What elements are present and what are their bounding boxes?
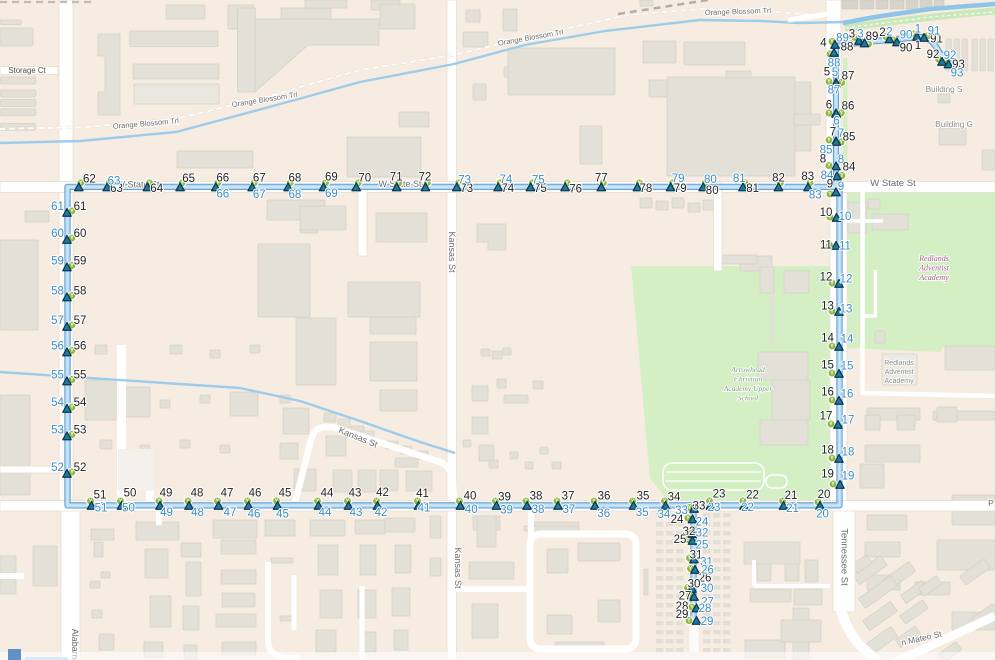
svg-text:Arrowhead: Arrowhead — [730, 365, 765, 374]
svg-text:78: 78 — [640, 183, 653, 195]
svg-text:15: 15 — [821, 360, 834, 372]
svg-text:81: 81 — [746, 183, 759, 195]
svg-text:17: 17 — [842, 415, 855, 427]
svg-text:79: 79 — [672, 173, 685, 185]
svg-text:Building G: Building G — [935, 120, 973, 129]
svg-text:Y: Y — [830, 398, 834, 404]
svg-text:1: 1 — [915, 40, 921, 52]
svg-text:54: 54 — [74, 397, 87, 409]
svg-text:21: 21 — [786, 503, 799, 515]
svg-text:72: 72 — [419, 172, 432, 184]
svg-text:55: 55 — [74, 370, 87, 382]
svg-text:29: 29 — [676, 609, 689, 621]
svg-text:66: 66 — [216, 173, 229, 185]
svg-text:36: 36 — [597, 508, 610, 520]
svg-text:Kansas St: Kansas St — [453, 547, 463, 589]
svg-text:32: 32 — [696, 528, 709, 540]
svg-text:63: 63 — [108, 175, 121, 187]
svg-text:14: 14 — [841, 334, 854, 346]
svg-text:9: 9 — [838, 181, 844, 193]
svg-text:37: 37 — [562, 491, 575, 503]
svg-text:Redlands: Redlands — [918, 254, 949, 263]
svg-text:5: 5 — [832, 67, 838, 79]
svg-text:11: 11 — [839, 241, 851, 253]
svg-text:90: 90 — [900, 30, 913, 42]
svg-text:52: 52 — [74, 462, 87, 474]
svg-text:Y: Y — [827, 111, 831, 117]
svg-text:28: 28 — [699, 603, 712, 615]
svg-text:45: 45 — [276, 509, 289, 521]
svg-text:5: 5 — [824, 67, 830, 79]
svg-text:Christian: Christian — [734, 375, 763, 384]
svg-text:74: 74 — [500, 174, 513, 186]
svg-text:56: 56 — [51, 341, 64, 353]
svg-text:34: 34 — [658, 509, 671, 521]
svg-text:4: 4 — [820, 38, 827, 50]
svg-text:61: 61 — [51, 201, 64, 213]
svg-text:81: 81 — [733, 173, 746, 185]
svg-text:Academy: Academy — [918, 273, 949, 282]
svg-text:46: 46 — [248, 509, 261, 521]
svg-text:92: 92 — [927, 49, 940, 61]
svg-text:19: 19 — [821, 469, 834, 481]
svg-text:35: 35 — [636, 507, 649, 519]
svg-text:18: 18 — [821, 445, 834, 457]
svg-text:25: 25 — [674, 534, 687, 546]
svg-text:48: 48 — [191, 488, 204, 500]
svg-text:Redlands: Redlands — [884, 360, 914, 367]
svg-text:69: 69 — [325, 188, 338, 200]
svg-text:19: 19 — [842, 471, 855, 483]
svg-text:82: 82 — [772, 173, 785, 185]
svg-text:56: 56 — [74, 341, 87, 353]
svg-text:Y: Y — [827, 138, 831, 144]
svg-text:21: 21 — [785, 490, 798, 502]
svg-text:20: 20 — [818, 489, 831, 501]
svg-text:50: 50 — [122, 503, 135, 515]
svg-text:13: 13 — [821, 301, 834, 313]
svg-text:Adventist: Adventist — [918, 264, 950, 273]
svg-text:39: 39 — [500, 505, 513, 517]
svg-text:58: 58 — [74, 286, 87, 298]
svg-text:Kansas St: Kansas St — [447, 231, 457, 273]
svg-text:17: 17 — [820, 411, 833, 423]
svg-text:48: 48 — [191, 507, 204, 519]
svg-text:30: 30 — [688, 579, 701, 591]
svg-text:42: 42 — [376, 487, 389, 499]
svg-text:16: 16 — [821, 387, 834, 399]
svg-text:76: 76 — [569, 184, 582, 196]
svg-text:51: 51 — [95, 503, 108, 515]
svg-text:School: School — [738, 394, 758, 403]
svg-text:80: 80 — [706, 185, 719, 197]
svg-text:2: 2 — [886, 27, 892, 39]
svg-text:57: 57 — [51, 315, 64, 327]
svg-text:12: 12 — [820, 272, 833, 284]
svg-text:23: 23 — [713, 489, 726, 501]
svg-text:3: 3 — [857, 29, 863, 41]
svg-text:2: 2 — [879, 27, 885, 39]
svg-text:45: 45 — [279, 488, 292, 500]
svg-text:89: 89 — [836, 33, 849, 45]
svg-text:54: 54 — [51, 397, 64, 409]
svg-text:Y: Y — [830, 344, 834, 350]
svg-text:52: 52 — [51, 462, 64, 474]
svg-text:70: 70 — [358, 173, 371, 185]
svg-text:90: 90 — [900, 43, 913, 55]
svg-text:59: 59 — [74, 256, 87, 268]
svg-text:44: 44 — [319, 507, 332, 519]
svg-text:65: 65 — [182, 173, 195, 185]
svg-text:36: 36 — [598, 491, 611, 503]
svg-text:49: 49 — [160, 507, 173, 519]
svg-text:87: 87 — [828, 85, 841, 97]
svg-text:10: 10 — [820, 207, 833, 219]
svg-text:38: 38 — [530, 491, 543, 503]
svg-text:Adventist: Adventist — [885, 369, 914, 376]
svg-text:89: 89 — [866, 31, 879, 43]
svg-text:Academy Upper: Academy Upper — [723, 384, 773, 393]
svg-text:47: 47 — [224, 507, 237, 519]
svg-text:83: 83 — [809, 190, 822, 202]
svg-text:57: 57 — [74, 315, 87, 327]
svg-text:60: 60 — [74, 228, 87, 240]
svg-text:26: 26 — [701, 565, 714, 577]
svg-text:40: 40 — [464, 491, 477, 503]
svg-text:64: 64 — [150, 183, 163, 195]
svg-text:71: 71 — [390, 172, 403, 184]
svg-text:22: 22 — [741, 502, 754, 514]
svg-text:66: 66 — [216, 188, 229, 200]
svg-text:35: 35 — [637, 491, 650, 503]
svg-text:34: 34 — [668, 492, 681, 504]
svg-text:73: 73 — [458, 175, 471, 187]
svg-text:10: 10 — [839, 211, 852, 223]
svg-text:47: 47 — [221, 488, 234, 500]
svg-text:41: 41 — [418, 503, 431, 515]
svg-text:75: 75 — [532, 175, 545, 187]
svg-text:93: 93 — [951, 68, 964, 80]
svg-text:1: 1 — [915, 24, 921, 36]
svg-text:62: 62 — [83, 174, 96, 186]
svg-text:67: 67 — [253, 173, 266, 185]
svg-text:43: 43 — [349, 488, 362, 500]
svg-text:41: 41 — [416, 488, 429, 500]
svg-text:18: 18 — [842, 447, 855, 459]
svg-text:Y: Y — [830, 371, 834, 377]
svg-text:37: 37 — [563, 504, 576, 516]
svg-text:W State St: W State St — [870, 178, 916, 189]
svg-text:80: 80 — [704, 174, 717, 186]
svg-text:3: 3 — [849, 29, 855, 41]
svg-text:20: 20 — [816, 509, 829, 521]
svg-text:46: 46 — [249, 488, 262, 500]
svg-text:30: 30 — [701, 583, 714, 595]
svg-text:11: 11 — [820, 240, 832, 252]
svg-text:15: 15 — [841, 361, 854, 373]
svg-text:53: 53 — [51, 425, 64, 437]
svg-text:9: 9 — [827, 179, 833, 191]
svg-text:24: 24 — [671, 514, 684, 526]
svg-text:53: 53 — [74, 425, 87, 437]
svg-text:40: 40 — [465, 504, 478, 516]
svg-text:84: 84 — [843, 162, 856, 174]
svg-text:Academy: Academy — [884, 378, 914, 385]
svg-text:91: 91 — [928, 26, 941, 38]
svg-text:12: 12 — [840, 274, 853, 286]
svg-text:Y: Y — [830, 456, 834, 462]
svg-text:Y: Y — [827, 163, 831, 169]
svg-text:51: 51 — [94, 490, 107, 502]
svg-text:68: 68 — [289, 173, 302, 185]
svg-text:59: 59 — [51, 256, 64, 268]
svg-text:7: 7 — [830, 127, 836, 139]
svg-text:43: 43 — [350, 507, 363, 519]
svg-text:22: 22 — [746, 490, 759, 502]
svg-text:58: 58 — [51, 286, 64, 298]
svg-text:67: 67 — [253, 189, 266, 201]
svg-text:68: 68 — [289, 189, 302, 201]
svg-text:Y: Y — [829, 422, 833, 428]
svg-text:69: 69 — [325, 172, 338, 184]
svg-text:8: 8 — [820, 154, 826, 166]
svg-text:14: 14 — [821, 333, 834, 345]
svg-text:16: 16 — [841, 389, 854, 401]
svg-text:55: 55 — [51, 370, 64, 382]
svg-text:50: 50 — [124, 488, 137, 500]
svg-text:29: 29 — [701, 616, 714, 628]
svg-text:61: 61 — [74, 201, 87, 213]
svg-text:38: 38 — [532, 504, 545, 516]
svg-text:6: 6 — [826, 100, 832, 112]
svg-text:44: 44 — [321, 488, 334, 500]
svg-text:Tennessee St: Tennessee St — [839, 528, 850, 586]
svg-text:87: 87 — [842, 71, 855, 83]
svg-text:83: 83 — [801, 171, 814, 183]
svg-text:23: 23 — [708, 502, 721, 514]
svg-text:P: P — [988, 498, 994, 508]
svg-text:13: 13 — [840, 304, 853, 316]
svg-text:86: 86 — [842, 101, 855, 113]
svg-text:Building S: Building S — [926, 85, 963, 94]
svg-text:Storage Ct: Storage Ct — [8, 66, 46, 75]
svg-text:42: 42 — [375, 507, 388, 519]
svg-text:33: 33 — [693, 501, 706, 513]
svg-text:77: 77 — [595, 173, 608, 185]
svg-text:60: 60 — [51, 228, 64, 240]
svg-text:39: 39 — [498, 492, 511, 504]
svg-text:49: 49 — [160, 488, 173, 500]
svg-text:Y: Y — [831, 482, 835, 488]
svg-text:85: 85 — [843, 132, 856, 144]
